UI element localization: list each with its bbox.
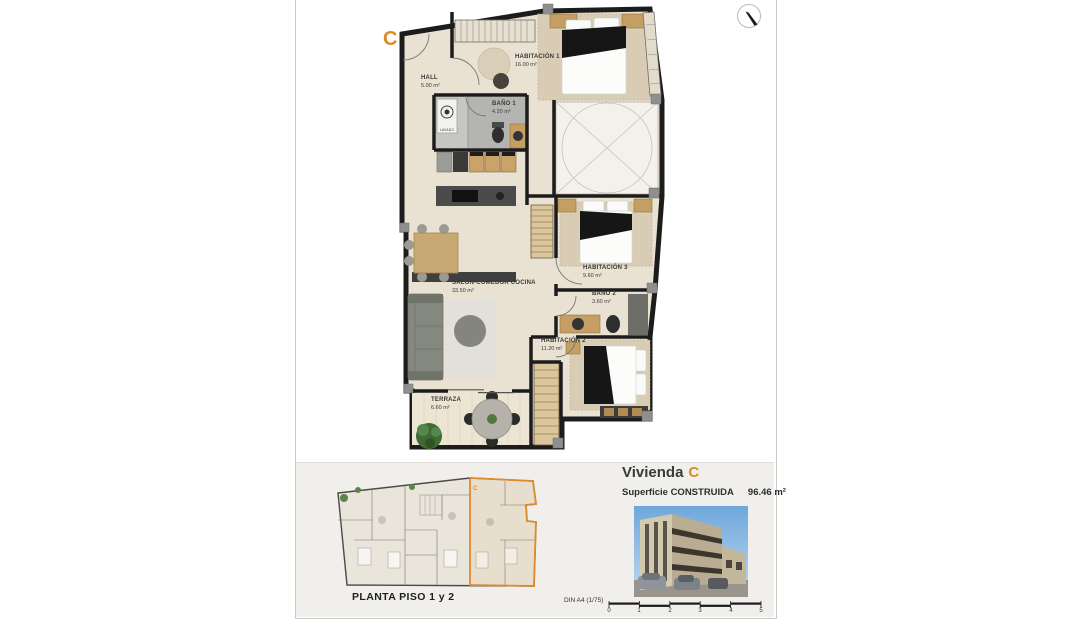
patio-lightwell (556, 102, 658, 194)
room-label-salon: SALÓN-COMEDOR COCINA 33.50 m² (452, 280, 536, 295)
floor-plan (380, 0, 680, 465)
room-label-bano1: BAÑO 1 4.20 m² (492, 101, 516, 116)
bed3 (558, 199, 652, 266)
north-arrow-icon (735, 2, 765, 32)
unit-letter: C (688, 464, 699, 481)
page: C LAVADO HALL 5.00 m² HABITACIÓN 1 16.00… (0, 0, 1070, 620)
unit-title-text: Vivienda (622, 464, 683, 481)
sofa (408, 294, 496, 380)
overview-unit-marker: C (473, 486, 478, 492)
scale-tick-5: 5 (755, 608, 767, 614)
surface-value: 96.46 m² (748, 487, 786, 498)
room-label-habitacion1: HABITACIÓN 1 16.00 m² (515, 54, 560, 69)
room-label-terraza: TERRAZA 6.60 m² (431, 397, 461, 412)
scale-tick-3: 3 (694, 608, 706, 614)
surface-row: Superficie CONSTRUIDA96.46 m² (622, 487, 786, 498)
overview-caption: PLANTA PISO 1 y 2 (352, 591, 455, 603)
scale-bar (607, 600, 763, 610)
scale-tick-2: 2 (664, 608, 676, 614)
plan-unit-marker: C (383, 28, 397, 51)
room-label-habitacion2: HABITACIÓN 2 11.20 m² (541, 338, 586, 353)
scale-tick-4: 4 (725, 608, 737, 614)
room-label-bano2: BAÑO 2 3.60 m² (592, 291, 616, 306)
scale-tick-1: 1 (633, 608, 645, 614)
room-label-hall: HALL 5.00 m² (421, 75, 440, 90)
sheet-format-label: DIN A4 (1/75) (564, 597, 603, 604)
room-label-habitacion3: HABITACIÓN 3 9.60 m² (583, 265, 628, 280)
overview-unit-c-highlight: C (470, 478, 536, 586)
surface-label: Superficie CONSTRUIDA (622, 487, 734, 498)
scale-tick-0: 0 (603, 608, 615, 614)
washer-label: LAVADO (436, 128, 458, 132)
overview-plan: C (330, 472, 542, 590)
building-photo (634, 506, 748, 597)
unit-title: ViviendaC (622, 464, 699, 481)
